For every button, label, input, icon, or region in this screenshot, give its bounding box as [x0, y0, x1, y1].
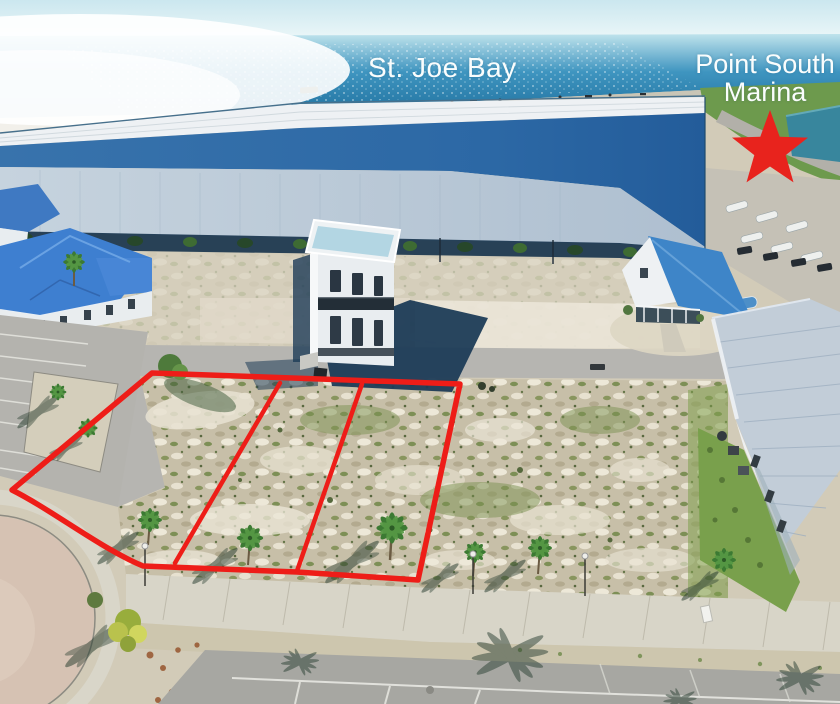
boat-at-shore [300, 86, 318, 93]
bay-label: St. Joe Bay [368, 52, 517, 84]
street-lamp [142, 543, 148, 549]
marina-label: Point South Marina [690, 50, 840, 107]
balcony [318, 298, 394, 310]
ac-unit [728, 446, 739, 455]
white-house [293, 220, 400, 370]
marina-label-line1: Point South [690, 50, 840, 78]
aerial-listing-photo: St. Joe Bay Point South Marina [0, 0, 840, 704]
marina-label-line2: Marina [690, 78, 840, 106]
